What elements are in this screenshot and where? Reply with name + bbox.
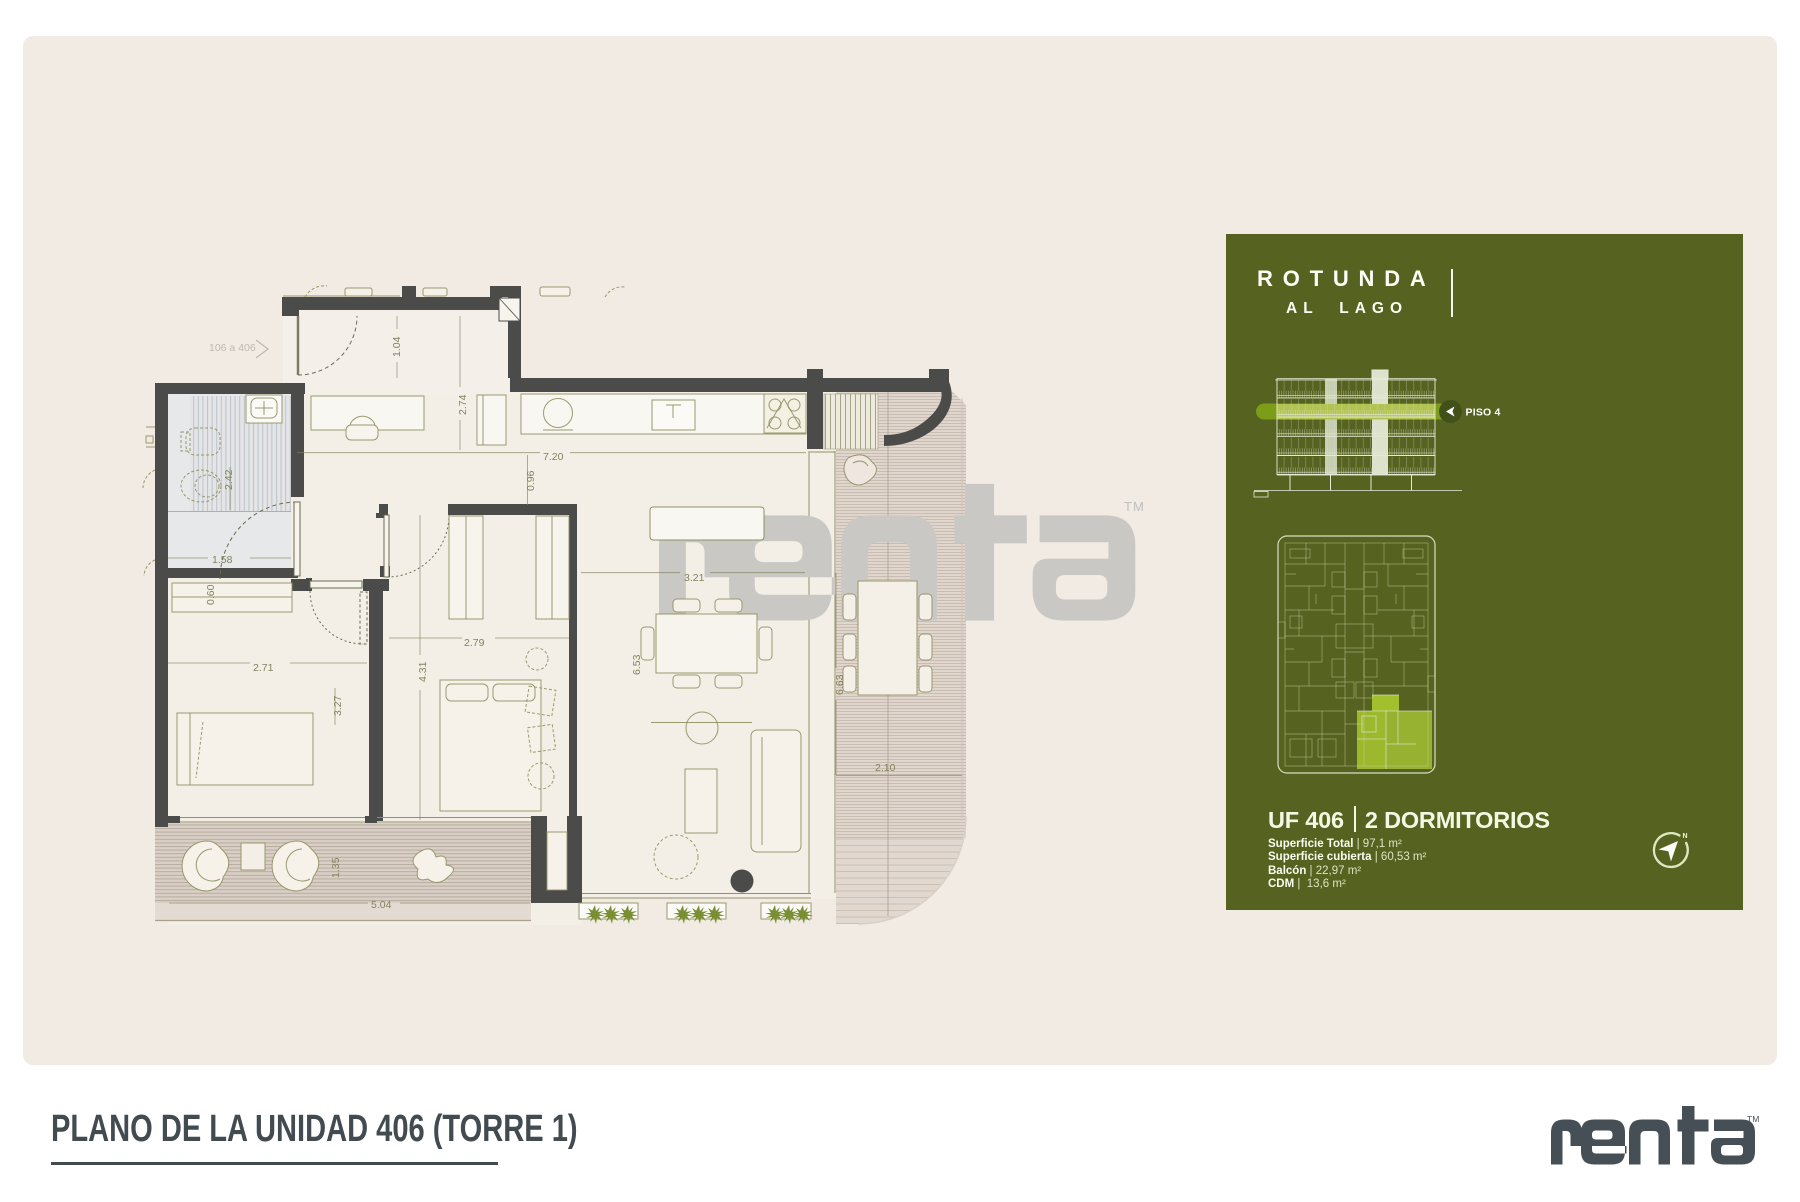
svg-text:2.71: 2.71 — [253, 662, 274, 674]
svg-text:2.42: 2.42 — [223, 469, 235, 490]
svg-text:3.27: 3.27 — [332, 695, 344, 716]
svg-text:6.53: 6.53 — [631, 654, 643, 675]
svg-text:106 a 406: 106 a 406 — [209, 342, 256, 354]
svg-text:2.10: 2.10 — [875, 762, 896, 774]
svg-text:0.96: 0.96 — [525, 470, 537, 491]
svg-text:5.04: 5.04 — [371, 899, 392, 911]
svg-text:2.79: 2.79 — [464, 637, 485, 649]
svg-text:6.63: 6.63 — [834, 674, 846, 695]
svg-text:1.58: 1.58 — [212, 554, 233, 566]
svg-text:PISO 4: PISO 4 — [1466, 407, 1501, 419]
svg-text:1.35: 1.35 — [330, 857, 342, 878]
svg-text:TM: TM — [1747, 1114, 1759, 1124]
svg-text:4.31: 4.31 — [417, 661, 429, 682]
svg-text:7.20: 7.20 — [543, 451, 564, 463]
svg-text:TM: TM — [1124, 499, 1145, 514]
svg-text:0.60: 0.60 — [205, 584, 217, 605]
svg-text:2.74: 2.74 — [457, 394, 469, 415]
svg-text:3.21: 3.21 — [684, 572, 705, 584]
svg-text:1.04: 1.04 — [391, 336, 403, 357]
